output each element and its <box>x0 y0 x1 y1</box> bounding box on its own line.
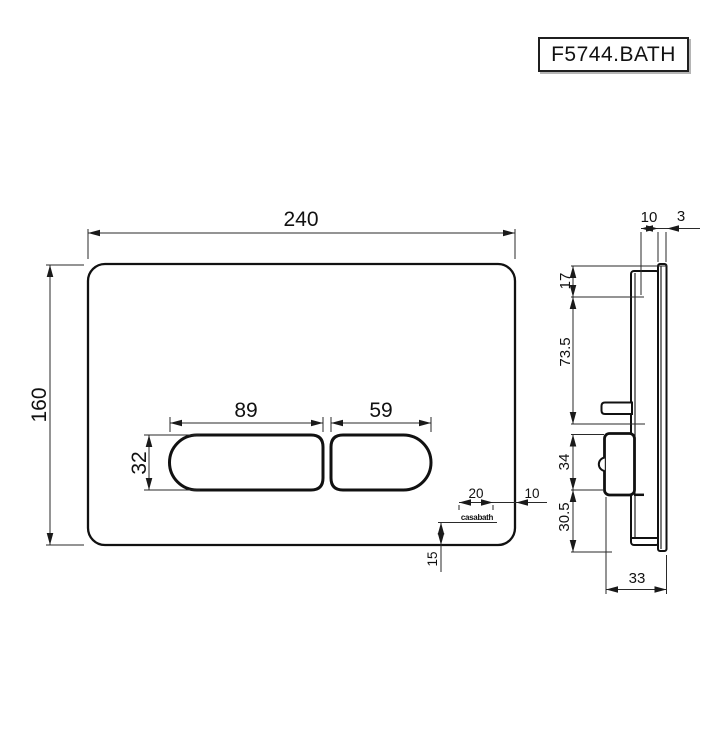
dim-label-panel-thickness: 3 <box>677 208 685 225</box>
dim-plate-height: 160 <box>28 265 84 545</box>
large-flush-button <box>170 435 324 490</box>
front-view: 240 160 89 <box>28 208 547 572</box>
brand-logo-text: casabath <box>461 513 494 522</box>
dim-label-upper-body-height: 73.5 <box>557 337 574 366</box>
dim-label-large-button-width: 89 <box>234 399 257 422</box>
dim-label-logo-bottom-offset: 15 <box>425 551 440 566</box>
dim-lower-body-height: 30.5 <box>556 490 612 552</box>
dim-label-plate-height: 160 <box>28 387 51 422</box>
dim-label-overall-depth: 33 <box>629 570 646 587</box>
dim-label-logo-right-offset: 10 <box>524 486 539 501</box>
dim-label-lower-body-height: 30.5 <box>556 502 573 531</box>
dim-panel-thickness: 3 <box>658 208 700 229</box>
mounting-clip-profile <box>602 403 633 415</box>
dim-label-plate-width: 240 <box>283 208 318 231</box>
dim-label-mechanism-height: 34 <box>556 454 573 471</box>
dim-plate-width: 240 <box>88 208 515 259</box>
side-view: 10 3 17 73.5 3 <box>556 208 700 594</box>
front-panel-profile <box>658 264 667 551</box>
mechanism-housing-profile <box>605 434 635 496</box>
dim-mechanism-height: 34 <box>556 435 604 491</box>
pushrod-detail <box>599 458 605 472</box>
flush-plate-outline <box>88 264 515 545</box>
small-flush-button <box>331 435 431 490</box>
dim-label-logo-width: 20 <box>468 486 483 501</box>
dim-label-small-button-width: 59 <box>369 399 392 422</box>
drawing-canvas: 240 160 89 <box>0 0 720 745</box>
dim-label-top-clearance: 17 <box>557 273 574 290</box>
dim-label-button-height: 32 <box>128 451 151 474</box>
technical-drawing-page: F5744.BATH 240 160 <box>0 0 720 745</box>
dim-label-frame-depth: 10 <box>641 209 658 226</box>
